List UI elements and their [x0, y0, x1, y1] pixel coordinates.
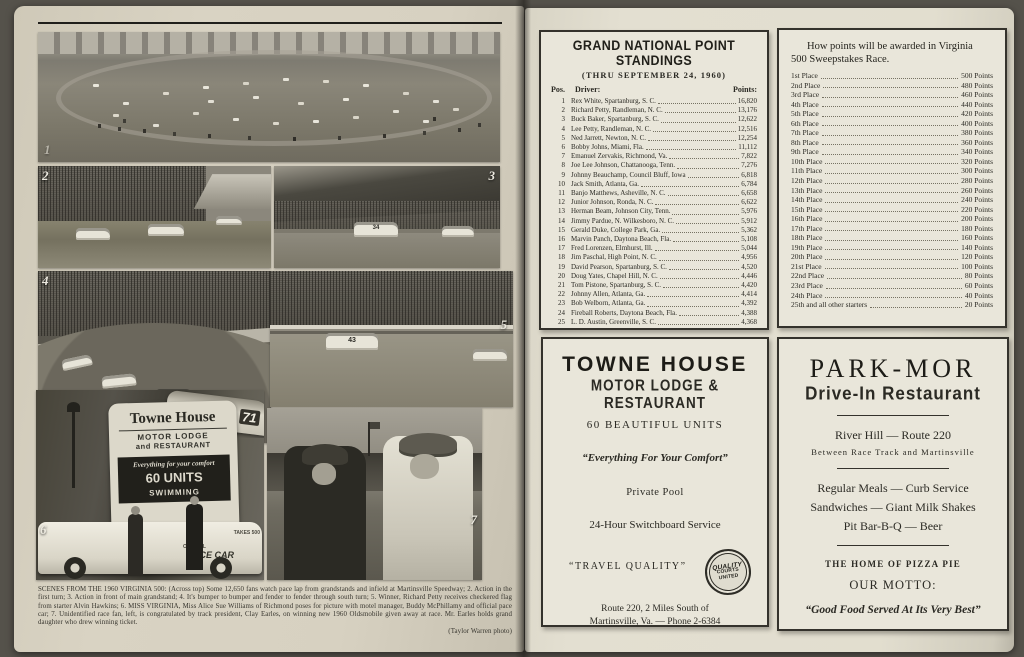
sign-black-panel: Everything for your comfort 60 UNITS SWI…	[117, 455, 231, 504]
dotted-leader	[825, 230, 958, 231]
sign-line-3: and RESTAURANT	[109, 439, 237, 451]
row-points: 360 Points	[961, 138, 993, 148]
miss-virginia-figure	[128, 514, 143, 576]
photo-number-6: 6	[40, 522, 47, 538]
dotted-leader	[663, 287, 739, 288]
dotted-leader	[870, 307, 962, 308]
row-driver: Jack Smith, Atlanta, Ga.	[571, 180, 639, 189]
points-award-row: 15th Place 220 Points	[791, 205, 993, 215]
menu-line-1: Regular Meals — Curb Service	[779, 481, 1007, 496]
row-driver: Marvin Panch, Daytona Beach, Fla.	[571, 235, 671, 244]
standings-row: 9 Johnny Beauchamp, Council Bluff, Iowa …	[551, 171, 757, 180]
wheel	[210, 557, 232, 579]
dotted-leader	[821, 78, 958, 79]
dotted-leader	[825, 173, 958, 174]
travel-quality-row: “TRAVEL QUALITY” QUALITY COURTS UNITED	[543, 549, 767, 591]
points-award-row: 24th Place 40 Points	[791, 291, 993, 301]
track-surface	[270, 334, 513, 407]
slogan-line: “Everything For Your Comfort”	[543, 452, 767, 464]
row-points: 6,784	[741, 180, 757, 189]
face	[312, 463, 337, 484]
dotted-leader	[822, 116, 958, 117]
row-place: 6th Place	[791, 119, 819, 129]
dotted-leader	[661, 122, 736, 123]
row-driver: Johnny Allen, Atlanta, Ga.	[571, 290, 645, 299]
sign-units: 60 UNITS	[118, 469, 231, 487]
race-car-shape	[148, 224, 184, 236]
row-position: 11	[551, 189, 565, 198]
row-position: 23	[551, 299, 565, 308]
row-points: 5,362	[741, 226, 757, 235]
row-driver: Banjo Matthews, Asheville, N. C.	[571, 189, 666, 198]
points-award-row: 22nd Place 80 Points	[791, 271, 993, 281]
dotted-leader	[688, 177, 740, 178]
right-page: GRAND NATIONAL POINT STANDINGS (THRU SEP…	[525, 8, 1014, 652]
row-points: 160 Points	[961, 233, 993, 243]
dotted-leader	[825, 183, 958, 184]
location-line-1: River Hill — Route 220	[779, 428, 1007, 443]
standings-row: 3 Buck Baker, Spartanburg, S. C. 12,622	[551, 115, 757, 124]
row-driver: Richard Petty, Randleman, N. C.	[571, 106, 663, 115]
title-line-1: How points will be awarded in Virginia	[791, 40, 993, 53]
dotted-leader	[822, 97, 958, 98]
standings-row: 15 Gerald Duke, College Park, Ga. 5,362	[551, 226, 757, 235]
race-car-shape	[473, 349, 507, 361]
row-driver: Johnny Beauchamp, Council Bluff, Iowa	[571, 171, 686, 180]
row-points: 12,622	[738, 115, 757, 124]
row-points: 460 Points	[961, 90, 993, 100]
row-points: 180 Points	[961, 224, 993, 234]
wheel	[64, 557, 86, 579]
row-driver: Buck Baker, Spartanburg, S. C.	[571, 115, 659, 124]
row-driver: Jim Paschal, High Point, N. C.	[571, 253, 657, 262]
row-position: 6	[551, 143, 565, 152]
advertiser-name: TOWNE HOUSE	[543, 353, 767, 377]
dotted-leader	[669, 269, 739, 270]
standings-row: 18 Jim Paschal, High Point, N. C. 4,956	[551, 253, 757, 262]
row-points: 6,818	[741, 171, 757, 180]
points-award-row: 6th Place 400 Points	[791, 119, 993, 129]
points-award-row: 20th Place 120 Points	[791, 252, 993, 262]
standings-rows: 1 Rex White, Spartanburg, S. C. 16,820 2…	[551, 97, 757, 327]
race-car-34: 34	[354, 222, 398, 237]
divider-rule	[837, 415, 949, 416]
towne-house-ad: TOWNE HOUSE MOTOR LODGE & RESTAURANT 60 …	[541, 337, 769, 627]
standings-row: 23 Bob Welborn, Atlanta, Ga. 4,392	[551, 299, 757, 308]
points-award-row: 12th Place 280 Points	[791, 176, 993, 186]
dotted-leader	[825, 240, 958, 241]
photo-checkered-flag: 43 5	[270, 271, 513, 407]
standings-row: 6 Bobby Johns, Miami, Fla. 11,112	[551, 143, 757, 152]
row-place: 3rd Place	[791, 90, 819, 100]
standings-row: 8 Joe Lee Johnson, Chattanooga, Tenn. 7,…	[551, 161, 757, 170]
points-award-rows: 1st Place 500 Points 2nd Place 480 Point…	[791, 71, 993, 310]
row-points: 4,414	[741, 290, 757, 299]
row-points: 260 Points	[961, 186, 993, 196]
row-position: 1	[551, 97, 565, 106]
row-points: 40 Points	[965, 291, 993, 301]
row-points: 5,912	[741, 217, 757, 226]
address-line-2: Martinsville, Va. — Phone 2-6384	[543, 616, 767, 629]
divider-rule	[837, 468, 949, 469]
row-points: 280 Points	[961, 176, 993, 186]
travel-quality-line: “TRAVEL QUALITY”	[569, 561, 687, 572]
race-car-shape	[216, 216, 242, 225]
row-points: 120 Points	[961, 252, 993, 262]
dotted-leader	[822, 125, 958, 126]
row-driver: Rex White, Spartanburg, S. C.	[571, 97, 656, 106]
row-driver: Ned Jarrett, Newton, N. C.	[571, 134, 646, 143]
clay-earles-figure	[383, 436, 473, 580]
row-points: 7,822	[741, 152, 757, 161]
standings-row: 2 Richard Petty, Randleman, N. C. 13,176	[551, 106, 757, 115]
points-award-row: 11th Place 300 Points	[791, 166, 993, 176]
motto-line: “Good Food Served At Its Very Best”	[779, 604, 1007, 616]
row-points: 6,622	[741, 198, 757, 207]
row-points: 100 Points	[961, 262, 993, 272]
standings-row: 17 Fred Lorenzen, Elmhurst, Ill. 5,044	[551, 244, 757, 253]
row-points: 4,446	[741, 272, 757, 281]
dotted-leader	[660, 278, 740, 279]
sign-swimming: SWIMMING	[118, 487, 231, 499]
dotted-leader	[665, 112, 736, 113]
dotted-leader	[668, 195, 740, 196]
row-place: 20th Place	[791, 252, 822, 262]
points-award-row: 17th Place 180 Points	[791, 224, 993, 234]
row-points: 320 Points	[961, 157, 993, 167]
row-place: 24th Place	[791, 291, 822, 301]
points-award-row: 5th Place 420 Points	[791, 109, 993, 119]
dotted-leader	[822, 106, 958, 107]
infield-crowd-dots	[118, 127, 121, 131]
row-place: 9th Place	[791, 147, 819, 157]
row-points: 11,112	[738, 143, 757, 152]
dotted-leader	[677, 168, 739, 169]
row-place: 10th Place	[791, 157, 822, 167]
dotted-leader	[822, 135, 958, 136]
pace-car-trunk-text: TAKES 500	[234, 530, 260, 536]
points-award-row: 23rd Place 60 Points	[791, 281, 993, 291]
points-award-title: How points will be awarded in Virginia 5…	[791, 40, 993, 66]
dotted-leader	[646, 149, 737, 150]
row-position: 25	[551, 318, 565, 327]
standings-row: 12 Junior Johnson, Ronda, N. C. 6,622	[551, 198, 757, 207]
dotted-leader	[647, 306, 739, 307]
row-driver: Fred Lorenzen, Elmhurst, Ill.	[571, 244, 653, 253]
standings-row: 24 Fireball Roberts, Daytona Beach, Fla.…	[551, 309, 757, 318]
row-points: 5,976	[741, 207, 757, 216]
dotted-leader	[826, 288, 962, 289]
points-award-row: 10th Place 320 Points	[791, 157, 993, 167]
photo-number-4: 4	[42, 273, 49, 289]
points-award-row: 16th Place 200 Points	[791, 214, 993, 224]
row-driver: Fireball Roberts, Daytona Beach, Fla.	[571, 309, 677, 318]
row-points: 420 Points	[961, 109, 993, 119]
row-points: 7,276	[741, 161, 757, 170]
points-award-row: 13th Place 260 Points	[791, 186, 993, 196]
row-position: 12	[551, 198, 565, 207]
standings-row: 10 Jack Smith, Atlanta, Ga. 6,784	[551, 180, 757, 189]
row-position: 15	[551, 226, 565, 235]
row-points: 4,392	[741, 299, 757, 308]
points-award-row: 21st Place 100 Points	[791, 262, 993, 272]
points-award-row: 14th Place 240 Points	[791, 195, 993, 205]
row-driver: Bobby Johns, Miami, Fla.	[571, 143, 644, 152]
caption-text: SCENES FROM THE 1960 VIRGINIA 500: (Acro…	[38, 586, 512, 626]
dotted-leader	[658, 103, 736, 104]
row-driver: Joe Lee Johnson, Chattanooga, Tenn.	[571, 161, 675, 170]
row-points: 4,368	[741, 318, 757, 327]
parked-cars-dots	[93, 84, 99, 87]
address-lines: Route 220, 2 Miles South of Martinsville…	[543, 603, 767, 629]
row-place: 2nd Place	[791, 81, 820, 91]
dotted-leader	[679, 315, 739, 316]
row-points: 60 Points	[965, 281, 993, 291]
row-points: 13,176	[738, 106, 757, 115]
dotted-leader	[659, 260, 739, 261]
dotted-leader	[658, 324, 739, 325]
row-position: 17	[551, 244, 565, 253]
row-position: 4	[551, 125, 565, 134]
quality-courts-seal-icon: QUALITY COURTS UNITED	[702, 546, 754, 598]
row-points: 12,254	[738, 134, 757, 143]
row-driver: Bob Welborn, Atlanta, Ga.	[571, 299, 645, 308]
row-driver: Tom Pistone, Spartanburg, S. C.	[571, 281, 661, 290]
points-award-row: 7th Place 380 Points	[791, 128, 993, 138]
row-position: 20	[551, 272, 565, 281]
points-award-row: 8th Place 360 Points	[791, 138, 993, 148]
header-pos: Pos.	[551, 85, 569, 94]
page-gutter-shadow	[515, 0, 531, 657]
row-points: 4,956	[741, 253, 757, 262]
race-fan-figure	[284, 446, 366, 580]
track-surface	[274, 233, 500, 268]
header-driver: Driver:	[569, 85, 733, 94]
row-place: 7th Place	[791, 128, 819, 138]
crowd-texture	[270, 271, 513, 325]
standings-title: GRAND NATIONAL POINT STANDINGS	[551, 38, 757, 68]
row-points: 500 Points	[961, 71, 993, 81]
dotted-leader	[655, 204, 739, 205]
standings-row: 13 Herman Beam, Johnson City, Tenn. 5,97…	[551, 207, 757, 216]
dotted-leader	[825, 297, 961, 298]
scanned-program-spread: 1 2 34 3	[0, 0, 1024, 657]
points-award-row: 9th Place 340 Points	[791, 147, 993, 157]
row-position: 13	[551, 207, 565, 216]
dotted-leader	[672, 214, 739, 215]
dotted-leader	[825, 268, 958, 269]
row-position: 14	[551, 217, 565, 226]
row-points: 6,658	[741, 189, 757, 198]
flag-pole	[368, 422, 370, 456]
standings-row: 21 Tom Pistone, Spartanburg, S. C. 4,420	[551, 281, 757, 290]
row-points: 200 Points	[961, 214, 993, 224]
standings-panel: GRAND NATIONAL POINT STANDINGS (THRU SEP…	[539, 30, 769, 330]
photo-number-2: 2	[42, 168, 49, 184]
points-award-row: 18th Place 160 Points	[791, 233, 993, 243]
row-place: 1st Place	[791, 71, 818, 81]
dotted-leader	[822, 154, 958, 155]
dotted-leader	[655, 250, 740, 251]
row-position: 22	[551, 290, 565, 299]
row-driver: Emanuel Zervakis, Richmond, Va.	[571, 152, 667, 161]
row-position: 8	[551, 161, 565, 170]
menu-line-2: Sandwiches — Giant Milk Shakes	[779, 500, 1007, 515]
photo-main-grandstand: 34 3	[274, 166, 500, 268]
row-points: 220 Points	[961, 205, 993, 215]
row-driver: Gerald Duke, College Park, Ga.	[571, 226, 660, 235]
row-driver: Lee Petty, Randleman, N. C.	[571, 125, 651, 134]
advertiser-subtitle: Drive-In Restaurant	[779, 383, 1007, 405]
row-place: 11th Place	[791, 166, 822, 176]
row-place: 25th and all other starters	[791, 300, 867, 310]
row-place: 4th Place	[791, 100, 819, 110]
row-place: 14th Place	[791, 195, 822, 205]
row-points: 300 Points	[961, 166, 993, 176]
row-position: 9	[551, 171, 565, 180]
race-car-shape	[442, 226, 474, 237]
row-points: 16,820	[738, 97, 757, 106]
row-points: 5,044	[741, 244, 757, 253]
car-number-label: 34	[354, 225, 398, 231]
photo-miss-virginia-pace-car: 71 Towne House MOTOR LODGE and RESTAURAN…	[36, 390, 264, 580]
dotted-leader	[647, 296, 739, 297]
crowd-texture	[38, 166, 206, 225]
face	[410, 454, 439, 479]
row-driver: Herman Beam, Johnson City, Tenn.	[571, 207, 670, 216]
standings-row: 5 Ned Jarrett, Newton, N. C. 12,254	[551, 134, 757, 143]
row-points: 20 Points	[965, 300, 993, 310]
row-position: 7	[551, 152, 565, 161]
row-driver: Junior Johnson, Ronda, N. C.	[571, 198, 653, 207]
row-position: 24	[551, 309, 565, 318]
fence-rail	[270, 325, 513, 329]
standings-row: 1 Rex White, Spartanburg, S. C. 16,820	[551, 97, 757, 106]
row-position: 10	[551, 180, 565, 189]
dotted-leader	[825, 192, 958, 193]
title-line-2: 500 Sweepstakes Race.	[791, 54, 889, 65]
park-mor-ad: PARK-MOR Drive-In Restaurant River Hill …	[777, 337, 1009, 631]
row-points: 4,420	[741, 281, 757, 290]
sign-slogan: Everything for your comfort	[117, 459, 230, 470]
row-position: 16	[551, 235, 565, 244]
dotted-leader	[825, 211, 958, 212]
standings-subtitle: (THRU SEPTEMBER 24, 1960)	[551, 70, 757, 80]
race-car-43: 43	[326, 333, 378, 350]
standings-header-row: Pos. Driver: Points:	[551, 85, 757, 94]
standings-row: 4 Lee Petty, Randleman, N. C. 12,516	[551, 125, 757, 134]
row-driver: Jimmy Pardue, N. Wilkesboro, N. C.	[571, 217, 674, 226]
points-award-row: 1st Place 500 Points	[791, 71, 993, 81]
photo-pace-lap-panorama: 1	[38, 32, 500, 162]
dotted-leader	[641, 186, 739, 187]
points-award-row: 19th Place 140 Points	[791, 243, 993, 253]
row-place: 16th Place	[791, 214, 822, 224]
photo-number-3: 3	[489, 168, 496, 184]
dotted-leader	[825, 259, 958, 260]
menu-line-3: Pit Bar-B-Q — Beer	[779, 519, 1007, 534]
pizza-line: THE HOME OF PIZZA PIE	[779, 559, 1007, 569]
pool-line: Private Pool	[543, 487, 767, 498]
dotted-leader	[676, 223, 739, 224]
row-points: 80 Points	[965, 271, 993, 281]
row-place: 15th Place	[791, 205, 822, 215]
lamp-post	[72, 408, 75, 488]
points-award-panel: How points will be awarded in Virginia 5…	[777, 28, 1007, 328]
track-oval-outline	[56, 50, 491, 146]
row-place: 8th Place	[791, 138, 819, 148]
car-number-label: 71	[238, 409, 260, 426]
photo-first-turn: 2	[38, 166, 271, 268]
dotted-leader	[827, 278, 962, 279]
standings-row: 19 David Pearson, Spartanburg, S. C. 4,5…	[551, 263, 757, 272]
row-points: 140 Points	[961, 243, 993, 253]
row-position: 5	[551, 134, 565, 143]
standings-row: 20 Doug Yates, Chapel Hill, N. C. 4,446	[551, 272, 757, 281]
left-page: 1 2 34 3	[14, 6, 524, 652]
row-position: 21	[551, 281, 565, 290]
dotted-leader	[825, 163, 958, 164]
switchboard-line: 24-Hour Switchboard Service	[543, 519, 767, 531]
dotted-leader	[825, 202, 958, 203]
seal-line-3: UNITED	[719, 573, 739, 581]
standings-row: 11 Banjo Matthews, Asheville, N. C. 6,65…	[551, 189, 757, 198]
photo-number-7: 7	[471, 512, 478, 528]
row-points: 4,520	[741, 263, 757, 272]
row-points: 340 Points	[961, 147, 993, 157]
points-award-row: 25th and all other starters 20 Points	[791, 300, 993, 310]
row-place: 5th Place	[791, 109, 819, 119]
motto-label: OUR MOTTO:	[779, 578, 1007, 593]
row-place: 12th Place	[791, 176, 822, 186]
row-place: 19th Place	[791, 243, 822, 253]
photo-caption: SCENES FROM THE 1960 VIRGINIA 500: (Acro…	[38, 586, 512, 637]
race-car-shape	[76, 228, 110, 240]
advertiser-name: PARK-MOR	[779, 354, 1007, 384]
row-points: 400 Points	[961, 119, 993, 129]
row-position: 3	[551, 115, 565, 124]
row-points: 380 Points	[961, 128, 993, 138]
row-position: 2	[551, 106, 565, 115]
row-place: 21st Place	[791, 262, 822, 272]
row-points: 240 Points	[961, 195, 993, 205]
motel-manager-figure	[186, 504, 203, 570]
standings-row: 7 Emanuel Zervakis, Richmond, Va. 7,822	[551, 152, 757, 161]
photo-credit: (Taylor Warren photo)	[38, 628, 512, 636]
row-driver: L. D. Austin, Greenville, S. C.	[571, 318, 656, 327]
row-points: 5,108	[741, 235, 757, 244]
dotted-leader	[669, 158, 739, 159]
row-position: 18	[551, 253, 565, 262]
row-place: 22nd Place	[791, 271, 824, 281]
dotted-leader	[823, 87, 958, 88]
row-points: 12,516	[738, 125, 757, 134]
row-place: 13th Place	[791, 186, 822, 196]
points-award-row: 3rd Place 460 Points	[791, 90, 993, 100]
dotted-leader	[673, 241, 739, 242]
dotted-leader	[662, 232, 739, 233]
row-points: 4,388	[741, 309, 757, 318]
photo-number-1: 1	[44, 142, 51, 158]
photo-handshake: 7	[267, 408, 482, 580]
official-pace-car: OFFICIAL PACE CAR TAKES 500	[38, 522, 262, 574]
units-line: 60 BEAUTIFUL UNITS	[543, 419, 767, 431]
sign-name: Towne House	[108, 408, 236, 428]
row-place: 17th Place	[791, 224, 822, 234]
advertiser-subtitle: MOTOR LODGE & RESTAURANT	[543, 377, 767, 412]
top-rule	[38, 22, 502, 24]
cap	[302, 444, 348, 465]
